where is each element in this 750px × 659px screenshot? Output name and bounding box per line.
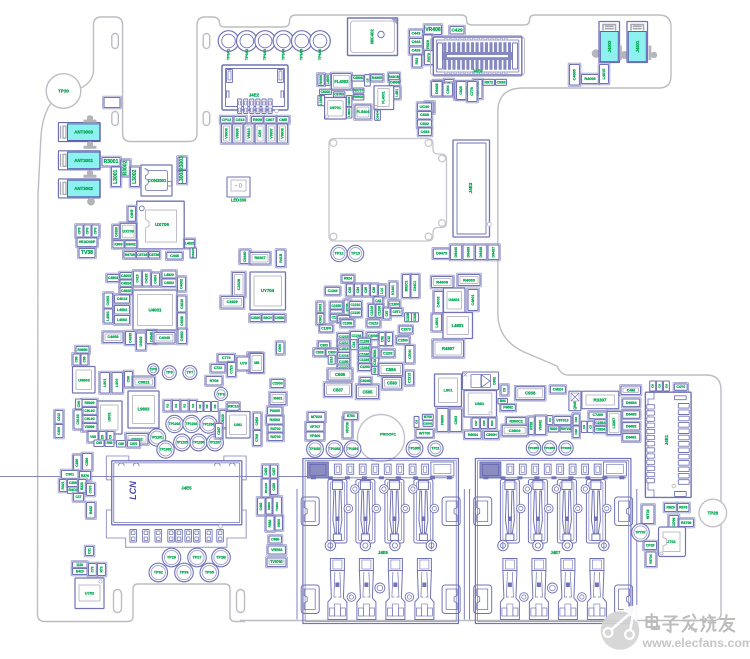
svg-text:C98: C98 bbox=[482, 420, 486, 426]
svg-text:R6: R6 bbox=[213, 404, 217, 408]
svg-text:R300C2: R300C2 bbox=[509, 420, 523, 424]
svg-text:D9437: D9437 bbox=[492, 247, 496, 258]
svg-text:TP3: TP3 bbox=[217, 392, 225, 397]
svg-text:C96: C96 bbox=[75, 356, 79, 362]
svg-text:C1300: C1300 bbox=[389, 303, 399, 307]
svg-text:C4908: C4908 bbox=[353, 76, 363, 80]
svg-text:C9208: C9208 bbox=[368, 334, 378, 338]
svg-text:C303: C303 bbox=[320, 343, 328, 347]
svg-text:R9Y20: R9Y20 bbox=[561, 427, 571, 431]
svg-text:F9600: F9600 bbox=[441, 415, 445, 425]
svg-text:R4C0: R4C0 bbox=[69, 488, 78, 492]
svg-text:VR708: VR708 bbox=[346, 422, 350, 433]
svg-text:R501: R501 bbox=[373, 349, 377, 357]
svg-text:V9807: V9807 bbox=[269, 128, 273, 138]
svg-text:S9CH: S9CH bbox=[263, 316, 272, 320]
svg-text:C807: C807 bbox=[265, 118, 274, 122]
svg-text:R6: R6 bbox=[198, 404, 202, 408]
svg-text:TP7: TP7 bbox=[186, 371, 193, 375]
svg-text:J701: J701 bbox=[667, 539, 676, 544]
svg-text:R9736: R9736 bbox=[125, 253, 135, 257]
svg-text:V9808: V9808 bbox=[281, 128, 285, 138]
svg-text:L4801: L4801 bbox=[435, 317, 439, 327]
svg-text:C944: C944 bbox=[446, 85, 450, 93]
svg-text:TP8: TP8 bbox=[150, 367, 157, 371]
svg-text:C96: C96 bbox=[118, 442, 124, 446]
svg-text:C207: C207 bbox=[217, 427, 221, 435]
svg-text:TP1060: TP1060 bbox=[561, 446, 572, 450]
svg-text:U801: U801 bbox=[475, 401, 485, 406]
svg-text:C9530: C9530 bbox=[275, 316, 285, 320]
svg-text:TP9A6: TP9A6 bbox=[318, 49, 322, 60]
svg-text:C1202: C1202 bbox=[383, 351, 393, 355]
svg-text:TP26: TP26 bbox=[167, 556, 176, 560]
svg-text:C9: C9 bbox=[657, 384, 661, 388]
svg-text:C309: C309 bbox=[85, 458, 89, 466]
svg-text:R2: R2 bbox=[191, 404, 195, 408]
svg-text:TPY07: TPY07 bbox=[635, 531, 645, 535]
svg-text:UY704: UY704 bbox=[261, 288, 275, 293]
svg-text:Q940: Q940 bbox=[573, 401, 577, 409]
svg-text:UC30: UC30 bbox=[420, 105, 430, 109]
svg-text:R3001: R3001 bbox=[104, 159, 119, 165]
svg-text:C4005: C4005 bbox=[573, 69, 577, 80]
svg-text:C308: C308 bbox=[69, 481, 77, 485]
svg-text:C4040: C4040 bbox=[159, 336, 170, 340]
svg-text:C9T0: C9T0 bbox=[392, 310, 400, 314]
svg-text:C1203: C1203 bbox=[360, 365, 370, 369]
svg-text:C3204: C3204 bbox=[596, 427, 606, 431]
svg-text:U4801: U4801 bbox=[448, 298, 459, 302]
svg-text:U901: U901 bbox=[107, 412, 112, 422]
svg-text:P0005: P0005 bbox=[270, 409, 280, 413]
svg-text:R4003: R4003 bbox=[463, 278, 476, 283]
svg-text:TP1202: TP1202 bbox=[169, 422, 181, 426]
svg-text:C630: C630 bbox=[420, 113, 429, 117]
svg-text:MIC402: MIC402 bbox=[370, 29, 375, 44]
svg-text:U9701: U9701 bbox=[330, 106, 341, 110]
svg-text:TP1055: TP1055 bbox=[409, 447, 420, 451]
svg-text:L9603: L9603 bbox=[138, 407, 151, 412]
svg-text:TP32: TP32 bbox=[154, 571, 163, 575]
svg-text:C12F0: C12F0 bbox=[321, 326, 331, 330]
svg-text:C4933: C4933 bbox=[129, 333, 133, 343]
svg-text:C1150: C1150 bbox=[339, 360, 349, 364]
svg-text:C4603: C4603 bbox=[108, 276, 118, 280]
svg-text:C801: C801 bbox=[318, 315, 322, 323]
svg-text:R73: R73 bbox=[100, 566, 104, 572]
svg-text:C34: C34 bbox=[352, 342, 356, 348]
svg-text:TP9A5: TP9A5 bbox=[300, 49, 304, 60]
svg-text:C633: C633 bbox=[420, 130, 429, 134]
svg-text:H904: H904 bbox=[277, 519, 281, 527]
svg-text:C3706: C3706 bbox=[672, 517, 676, 527]
svg-text:J4003: J4003 bbox=[607, 40, 612, 52]
svg-text:C9L63: C9L63 bbox=[76, 414, 80, 424]
svg-text:C9: C9 bbox=[582, 425, 586, 429]
svg-text:C9736: C9736 bbox=[149, 253, 159, 257]
svg-text:TP30: TP30 bbox=[58, 89, 69, 94]
svg-text:C92: C92 bbox=[380, 336, 384, 342]
svg-text:J4E6: J4E6 bbox=[378, 550, 388, 555]
svg-text:C5: C5 bbox=[365, 78, 369, 82]
svg-text:C95: C95 bbox=[96, 441, 102, 445]
svg-text:C96: C96 bbox=[127, 376, 131, 382]
svg-text:TP11: TP11 bbox=[432, 447, 440, 451]
svg-text:C437: C437 bbox=[272, 467, 276, 475]
svg-text:D9408: D9408 bbox=[435, 84, 439, 95]
svg-text:D9473: D9473 bbox=[436, 252, 447, 256]
svg-text:L801: L801 bbox=[443, 388, 453, 393]
svg-text:J4001: J4001 bbox=[635, 40, 640, 52]
svg-text:C9: C9 bbox=[503, 388, 507, 392]
svg-text:D9401: D9401 bbox=[626, 435, 637, 439]
svg-text:FL4002: FL4002 bbox=[334, 79, 349, 84]
svg-text:CM5: CM5 bbox=[279, 118, 287, 122]
svg-text:D9: D9 bbox=[101, 435, 105, 439]
svg-text:C32: C32 bbox=[574, 417, 578, 423]
svg-text:ANT3001: ANT3001 bbox=[74, 158, 93, 163]
svg-text:L4004: L4004 bbox=[117, 308, 127, 312]
svg-text:R432: R432 bbox=[89, 506, 93, 514]
svg-text:C706: C706 bbox=[255, 434, 259, 442]
svg-text:U9603: U9603 bbox=[78, 378, 90, 383]
svg-text:V9T013: V9T013 bbox=[556, 419, 568, 423]
svg-text:R3003: R3003 bbox=[179, 156, 185, 171]
svg-text:C4Y0: C4Y0 bbox=[676, 385, 685, 389]
svg-text:C406: C406 bbox=[57, 427, 61, 435]
svg-text:C3002: C3002 bbox=[509, 428, 522, 433]
svg-text:C1244: C1244 bbox=[328, 289, 338, 293]
svg-text:TP9A4: TP9A4 bbox=[281, 49, 285, 60]
svg-text:R9650: R9650 bbox=[78, 348, 88, 352]
svg-text:L14: L14 bbox=[380, 288, 384, 294]
svg-text:R703: R703 bbox=[347, 414, 355, 418]
svg-text:J4E8: J4E8 bbox=[472, 69, 483, 74]
svg-text:UX708: UX708 bbox=[123, 230, 134, 234]
svg-text:C9: C9 bbox=[109, 435, 113, 439]
svg-text:R924: R924 bbox=[344, 277, 352, 281]
svg-text:TP1201: TP1201 bbox=[151, 436, 163, 440]
svg-text:C9L30: C9L30 bbox=[84, 417, 94, 421]
svg-text:TP1204: TP1204 bbox=[203, 423, 215, 427]
svg-text:R370: R370 bbox=[81, 474, 89, 478]
svg-text:C31: C31 bbox=[88, 548, 92, 554]
svg-text:C507: C507 bbox=[333, 387, 344, 392]
svg-text:V9704: V9704 bbox=[649, 554, 653, 564]
svg-text:D9402: D9402 bbox=[626, 424, 637, 428]
svg-text:VR563: VR563 bbox=[271, 548, 282, 552]
svg-text:R6902: R6902 bbox=[354, 95, 364, 99]
svg-text:C1515: C1515 bbox=[339, 347, 349, 351]
svg-text:C3328: C3328 bbox=[237, 279, 241, 290]
svg-text:R52: R52 bbox=[415, 58, 419, 65]
svg-text:M905: M905 bbox=[267, 502, 271, 510]
svg-text:ANT3002: ANT3002 bbox=[74, 186, 93, 191]
svg-text:D9438: D9438 bbox=[479, 247, 483, 258]
svg-text:L4005: L4005 bbox=[326, 75, 330, 84]
svg-text:C722: C722 bbox=[214, 366, 223, 370]
svg-text:C4901: C4901 bbox=[106, 295, 110, 305]
svg-text:MCA30: MCA30 bbox=[264, 482, 268, 493]
svg-text:L3002: L3002 bbox=[132, 169, 138, 183]
svg-text:C439: C439 bbox=[272, 483, 276, 491]
svg-text:C94: C94 bbox=[356, 287, 360, 293]
svg-text:C930: C930 bbox=[328, 350, 336, 354]
svg-text:L4801: L4801 bbox=[452, 323, 465, 328]
svg-text:C328: C328 bbox=[413, 313, 417, 321]
svg-text:R976: R976 bbox=[679, 506, 687, 510]
svg-text:C300: C300 bbox=[75, 459, 79, 467]
svg-text:C94C1: C94C1 bbox=[413, 281, 417, 291]
svg-text:C9: C9 bbox=[415, 420, 419, 424]
svg-text:C92: C92 bbox=[574, 429, 578, 435]
svg-text:C444: C444 bbox=[412, 40, 422, 44]
svg-text:R9C10: R9C10 bbox=[228, 405, 238, 409]
svg-text:L4920: L4920 bbox=[164, 273, 174, 277]
svg-text:J4E1: J4E1 bbox=[664, 434, 669, 445]
svg-text:R2: R2 bbox=[166, 404, 170, 408]
svg-text:R9020: R9020 bbox=[85, 401, 95, 405]
svg-text:F9602: F9602 bbox=[503, 406, 513, 410]
svg-text:U70: U70 bbox=[240, 362, 247, 366]
svg-text:C938: C938 bbox=[525, 391, 536, 396]
svg-text:TP12: TP12 bbox=[334, 252, 343, 256]
svg-text:C9E0: C9E0 bbox=[255, 417, 259, 426]
svg-text:CON3001: CON3001 bbox=[148, 178, 167, 183]
svg-text:C4003: C4003 bbox=[121, 274, 131, 278]
svg-text:J4E5: J4E5 bbox=[181, 486, 192, 491]
svg-text:TP1206: TP1206 bbox=[193, 441, 205, 445]
svg-text:D9404: D9404 bbox=[626, 401, 637, 405]
svg-text:LED330: LED330 bbox=[231, 198, 247, 203]
svg-text:C723: C723 bbox=[230, 365, 234, 373]
svg-text:C93: C93 bbox=[348, 287, 352, 293]
svg-text:C583: C583 bbox=[387, 381, 398, 386]
svg-text:R4920: R4920 bbox=[191, 248, 195, 257]
svg-text:B10: B10 bbox=[330, 357, 334, 363]
svg-text:TV38: TV38 bbox=[81, 250, 93, 256]
svg-text:TP1056: TP1056 bbox=[528, 446, 539, 450]
svg-text:R909: R909 bbox=[253, 118, 262, 122]
svg-text:K909: K909 bbox=[114, 242, 122, 246]
svg-text:C4920: C4920 bbox=[121, 289, 131, 293]
svg-text:L3001: L3001 bbox=[113, 169, 119, 183]
svg-text:R43CM: R43CM bbox=[388, 75, 399, 79]
svg-text:TP1052: TP1052 bbox=[309, 447, 320, 451]
svg-text:C9H: C9H bbox=[77, 400, 81, 407]
svg-text:TP1203: TP1203 bbox=[186, 422, 198, 426]
svg-text:C778: C778 bbox=[470, 87, 474, 96]
svg-text:R3307: R3307 bbox=[594, 398, 607, 403]
svg-text:C3903: C3903 bbox=[347, 96, 351, 105]
svg-text:FL5404: FL5404 bbox=[356, 110, 370, 114]
svg-text:C443: C443 bbox=[259, 502, 263, 510]
svg-text:C970: C970 bbox=[130, 442, 138, 446]
svg-text:TP1054: TP1054 bbox=[347, 447, 358, 451]
svg-text:C1313: C1313 bbox=[408, 373, 412, 383]
svg-text:C913: C913 bbox=[235, 118, 244, 122]
svg-text:C1370: C1370 bbox=[401, 328, 411, 332]
svg-text:R4806: R4806 bbox=[436, 280, 449, 285]
svg-text:C903: C903 bbox=[454, 416, 458, 425]
svg-text:C900: C900 bbox=[278, 344, 282, 352]
svg-text:TP13: TP13 bbox=[351, 252, 360, 256]
svg-text:C4922: C4922 bbox=[164, 281, 174, 285]
svg-text:C4182: C4182 bbox=[145, 273, 149, 283]
svg-text:CF20: CF20 bbox=[646, 544, 655, 548]
svg-text:R703: R703 bbox=[530, 422, 534, 430]
svg-text:C9240: C9240 bbox=[361, 379, 371, 383]
svg-text:LCN: LCN bbox=[128, 481, 138, 500]
svg-text:www.elecfans.com: www.elecfans.com bbox=[642, 636, 750, 650]
svg-text:C40H: C40H bbox=[154, 275, 158, 284]
svg-text:C443: C443 bbox=[412, 32, 421, 36]
svg-text:C50H: C50H bbox=[408, 349, 412, 359]
svg-text:TP1053: TP1053 bbox=[329, 447, 340, 451]
svg-text:TP33: TP33 bbox=[179, 571, 188, 575]
svg-text:R41B: R41B bbox=[279, 253, 283, 262]
svg-text:R323: R323 bbox=[80, 482, 84, 490]
svg-text:C95: C95 bbox=[364, 287, 368, 293]
svg-text:C4924: C4924 bbox=[121, 282, 131, 286]
svg-text:R12: R12 bbox=[373, 367, 377, 373]
svg-text:C429: C429 bbox=[451, 28, 463, 33]
svg-text:L3901: L3901 bbox=[347, 108, 351, 117]
svg-text:VF406: VF406 bbox=[310, 434, 321, 438]
svg-text:R708: R708 bbox=[210, 379, 219, 383]
svg-text:C3210: C3210 bbox=[369, 321, 379, 325]
svg-text:R4965: R4965 bbox=[372, 76, 382, 80]
svg-text:I220: I220 bbox=[77, 563, 84, 567]
svg-text:WT02: WT02 bbox=[646, 509, 650, 519]
svg-text:C4M: C4M bbox=[627, 388, 635, 393]
svg-text:C9: C9 bbox=[651, 384, 655, 388]
svg-text:L4920: L4920 bbox=[185, 242, 195, 246]
svg-text:CP0: CP0 bbox=[86, 228, 90, 235]
svg-text:V3906: V3906 bbox=[85, 425, 95, 429]
svg-text:R3703: R3703 bbox=[270, 435, 280, 439]
svg-text:C4801: C4801 bbox=[471, 295, 475, 306]
svg-text:C22B4: C22B4 bbox=[595, 421, 605, 425]
svg-text:L3003: L3003 bbox=[179, 170, 185, 184]
svg-text:R901: R901 bbox=[318, 303, 322, 311]
svg-text:CP12: CP12 bbox=[222, 118, 232, 122]
svg-text:C13: C13 bbox=[373, 359, 377, 365]
svg-text:C73: C73 bbox=[91, 566, 95, 572]
svg-text:C4330: C4330 bbox=[114, 227, 118, 237]
svg-text:R3706: R3706 bbox=[681, 521, 691, 525]
svg-text:R4807: R4807 bbox=[442, 346, 455, 351]
svg-text:CP0: CP0 bbox=[78, 228, 82, 235]
svg-text:TP2B: TP2B bbox=[216, 556, 226, 560]
svg-text:C4010: C4010 bbox=[180, 299, 184, 309]
svg-text:L900: L900 bbox=[115, 379, 119, 387]
svg-text:C989: C989 bbox=[271, 538, 279, 542]
svg-text:V9808: V9808 bbox=[225, 128, 229, 138]
svg-text:C4013: C4013 bbox=[117, 297, 127, 301]
svg-text:TV9760: TV9760 bbox=[270, 560, 282, 564]
svg-text:D902: D902 bbox=[493, 377, 497, 385]
svg-text:T0903: T0903 bbox=[275, 502, 279, 511]
svg-text:C1236: C1236 bbox=[359, 358, 369, 362]
svg-text:J4E7: J4E7 bbox=[551, 550, 561, 555]
svg-text:R6: R6 bbox=[205, 404, 209, 408]
svg-text:R2: R2 bbox=[183, 404, 187, 408]
svg-text:C426: C426 bbox=[412, 49, 421, 53]
svg-text:B94: B94 bbox=[500, 399, 506, 403]
svg-text:TP9A1: TP9A1 bbox=[227, 49, 231, 60]
svg-text:C828: C828 bbox=[459, 86, 463, 95]
svg-text:C4030: C4030 bbox=[180, 316, 184, 326]
svg-text:D9: D9 bbox=[664, 384, 668, 388]
svg-text:V9810: V9810 bbox=[247, 128, 251, 138]
svg-text:C3: C3 bbox=[588, 425, 592, 429]
svg-text:ANT3003: ANT3003 bbox=[74, 130, 93, 135]
svg-text:C773: C773 bbox=[222, 356, 231, 360]
svg-text:U4001: U4001 bbox=[149, 308, 162, 313]
svg-text:R3002: R3002 bbox=[123, 160, 129, 175]
svg-text:R9307: R9307 bbox=[254, 256, 265, 260]
svg-text:C38: C38 bbox=[372, 287, 376, 293]
svg-text:C508: C508 bbox=[335, 372, 346, 377]
svg-text:R920: R920 bbox=[550, 427, 558, 431]
svg-text:C17: C17 bbox=[75, 495, 81, 499]
svg-text:C5404: C5404 bbox=[376, 110, 380, 119]
svg-text:V98: V98 bbox=[90, 435, 96, 439]
svg-text:M706: M706 bbox=[424, 415, 432, 419]
svg-text:R929: R929 bbox=[666, 506, 674, 510]
svg-text:C370: C370 bbox=[89, 485, 93, 493]
svg-text:C4950: C4950 bbox=[107, 335, 118, 339]
svg-text:R9004: R9004 bbox=[468, 433, 478, 437]
svg-text:K1401: K1401 bbox=[391, 285, 395, 295]
svg-text:D9403: D9403 bbox=[626, 413, 637, 417]
svg-text:PROOF1: PROOF1 bbox=[380, 432, 397, 437]
svg-text:C3320: C3320 bbox=[251, 316, 261, 320]
svg-text:C301: C301 bbox=[66, 473, 75, 477]
svg-text:K9032: K9032 bbox=[126, 242, 136, 246]
svg-text:M92C2: M92C2 bbox=[405, 281, 409, 292]
svg-text:TP1058: TP1058 bbox=[544, 446, 555, 450]
svg-text:R2003: R2003 bbox=[270, 418, 280, 422]
svg-text:HEAD30P: HEAD30P bbox=[79, 240, 96, 244]
svg-text:WT700: WT700 bbox=[419, 431, 430, 435]
svg-text:C9440: C9440 bbox=[243, 252, 247, 263]
svg-text:M7023: M7023 bbox=[311, 415, 322, 419]
svg-text:C1210: C1210 bbox=[351, 303, 361, 307]
svg-text:C6302: C6302 bbox=[321, 90, 331, 94]
svg-text:C446: C446 bbox=[170, 254, 179, 258]
svg-text:C4908: C4908 bbox=[390, 81, 400, 85]
svg-text:C1: C1 bbox=[548, 418, 552, 422]
svg-text:CP0: CP0 bbox=[94, 228, 98, 235]
svg-text:C1296: C1296 bbox=[378, 306, 382, 316]
svg-text:C1308: C1308 bbox=[343, 321, 353, 325]
svg-text:R321: R321 bbox=[61, 481, 65, 489]
svg-text:UX706: UX706 bbox=[155, 222, 169, 227]
svg-text:C8763: C8763 bbox=[334, 92, 344, 96]
svg-text:R4005: R4005 bbox=[584, 77, 595, 81]
svg-text:L4015: L4015 bbox=[602, 69, 606, 80]
svg-text:V9H62: V9H62 bbox=[539, 420, 543, 430]
svg-text:J4E2: J4E2 bbox=[249, 93, 260, 98]
svg-text:CM2H: CM2H bbox=[553, 388, 564, 392]
svg-text:C97: C97 bbox=[385, 310, 389, 316]
svg-text:R3702: R3702 bbox=[270, 427, 280, 431]
svg-text:C9H: C9H bbox=[258, 130, 262, 138]
svg-text:V9808: V9808 bbox=[236, 128, 240, 138]
